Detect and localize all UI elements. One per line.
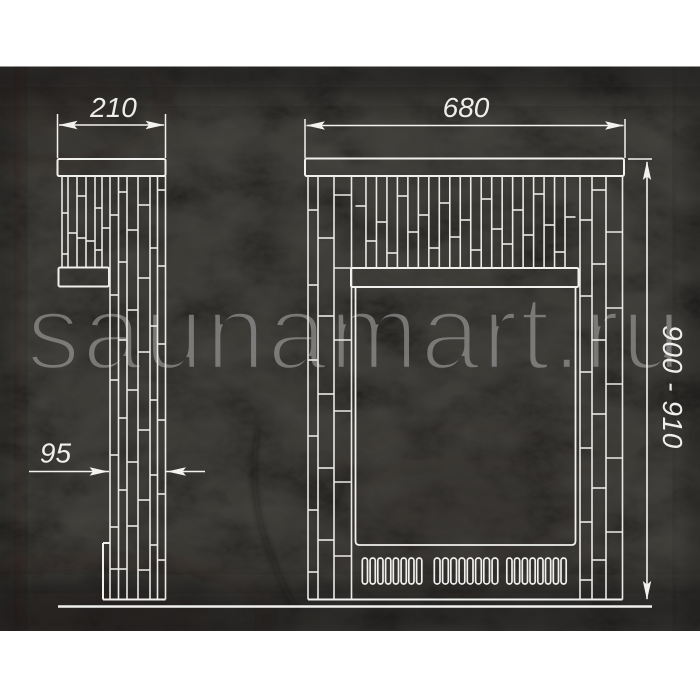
svg-text:680: 680 [443,92,490,123]
svg-text:95: 95 [40,438,72,469]
svg-text:900 - 910: 900 - 910 [657,325,688,449]
svg-text:210: 210 [89,92,137,123]
